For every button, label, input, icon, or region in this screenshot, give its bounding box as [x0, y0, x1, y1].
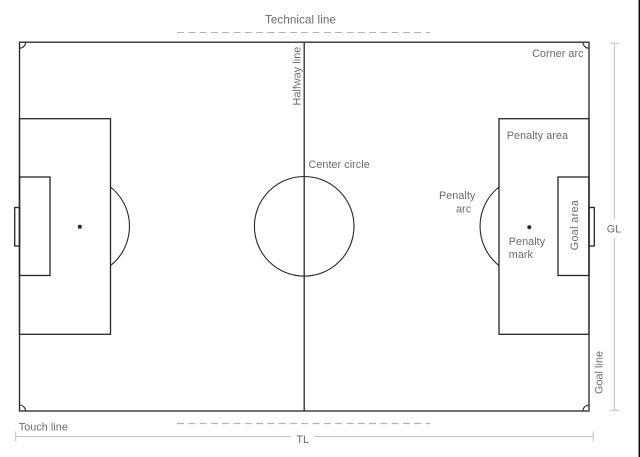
- svg-text:Penalty area: Penalty area: [507, 130, 568, 142]
- svg-text:Penalty: Penalty: [509, 236, 546, 248]
- svg-text:Technical line: Technical line: [265, 13, 336, 26]
- svg-text:arc: arc: [456, 203, 472, 215]
- svg-text:Touch line: Touch line: [19, 421, 68, 433]
- svg-text:mark: mark: [509, 249, 534, 261]
- svg-text:TL: TL: [296, 434, 309, 446]
- svg-text:Goal line: Goal line: [594, 351, 606, 394]
- svg-text:Halfway line: Halfway line: [292, 47, 304, 106]
- svg-text:GL: GL: [607, 224, 622, 236]
- svg-text:Penalty: Penalty: [439, 190, 476, 202]
- svg-text:Goal area: Goal area: [569, 200, 581, 251]
- svg-text:Corner arc: Corner arc: [532, 48, 584, 60]
- svg-text:Center circle: Center circle: [309, 159, 370, 171]
